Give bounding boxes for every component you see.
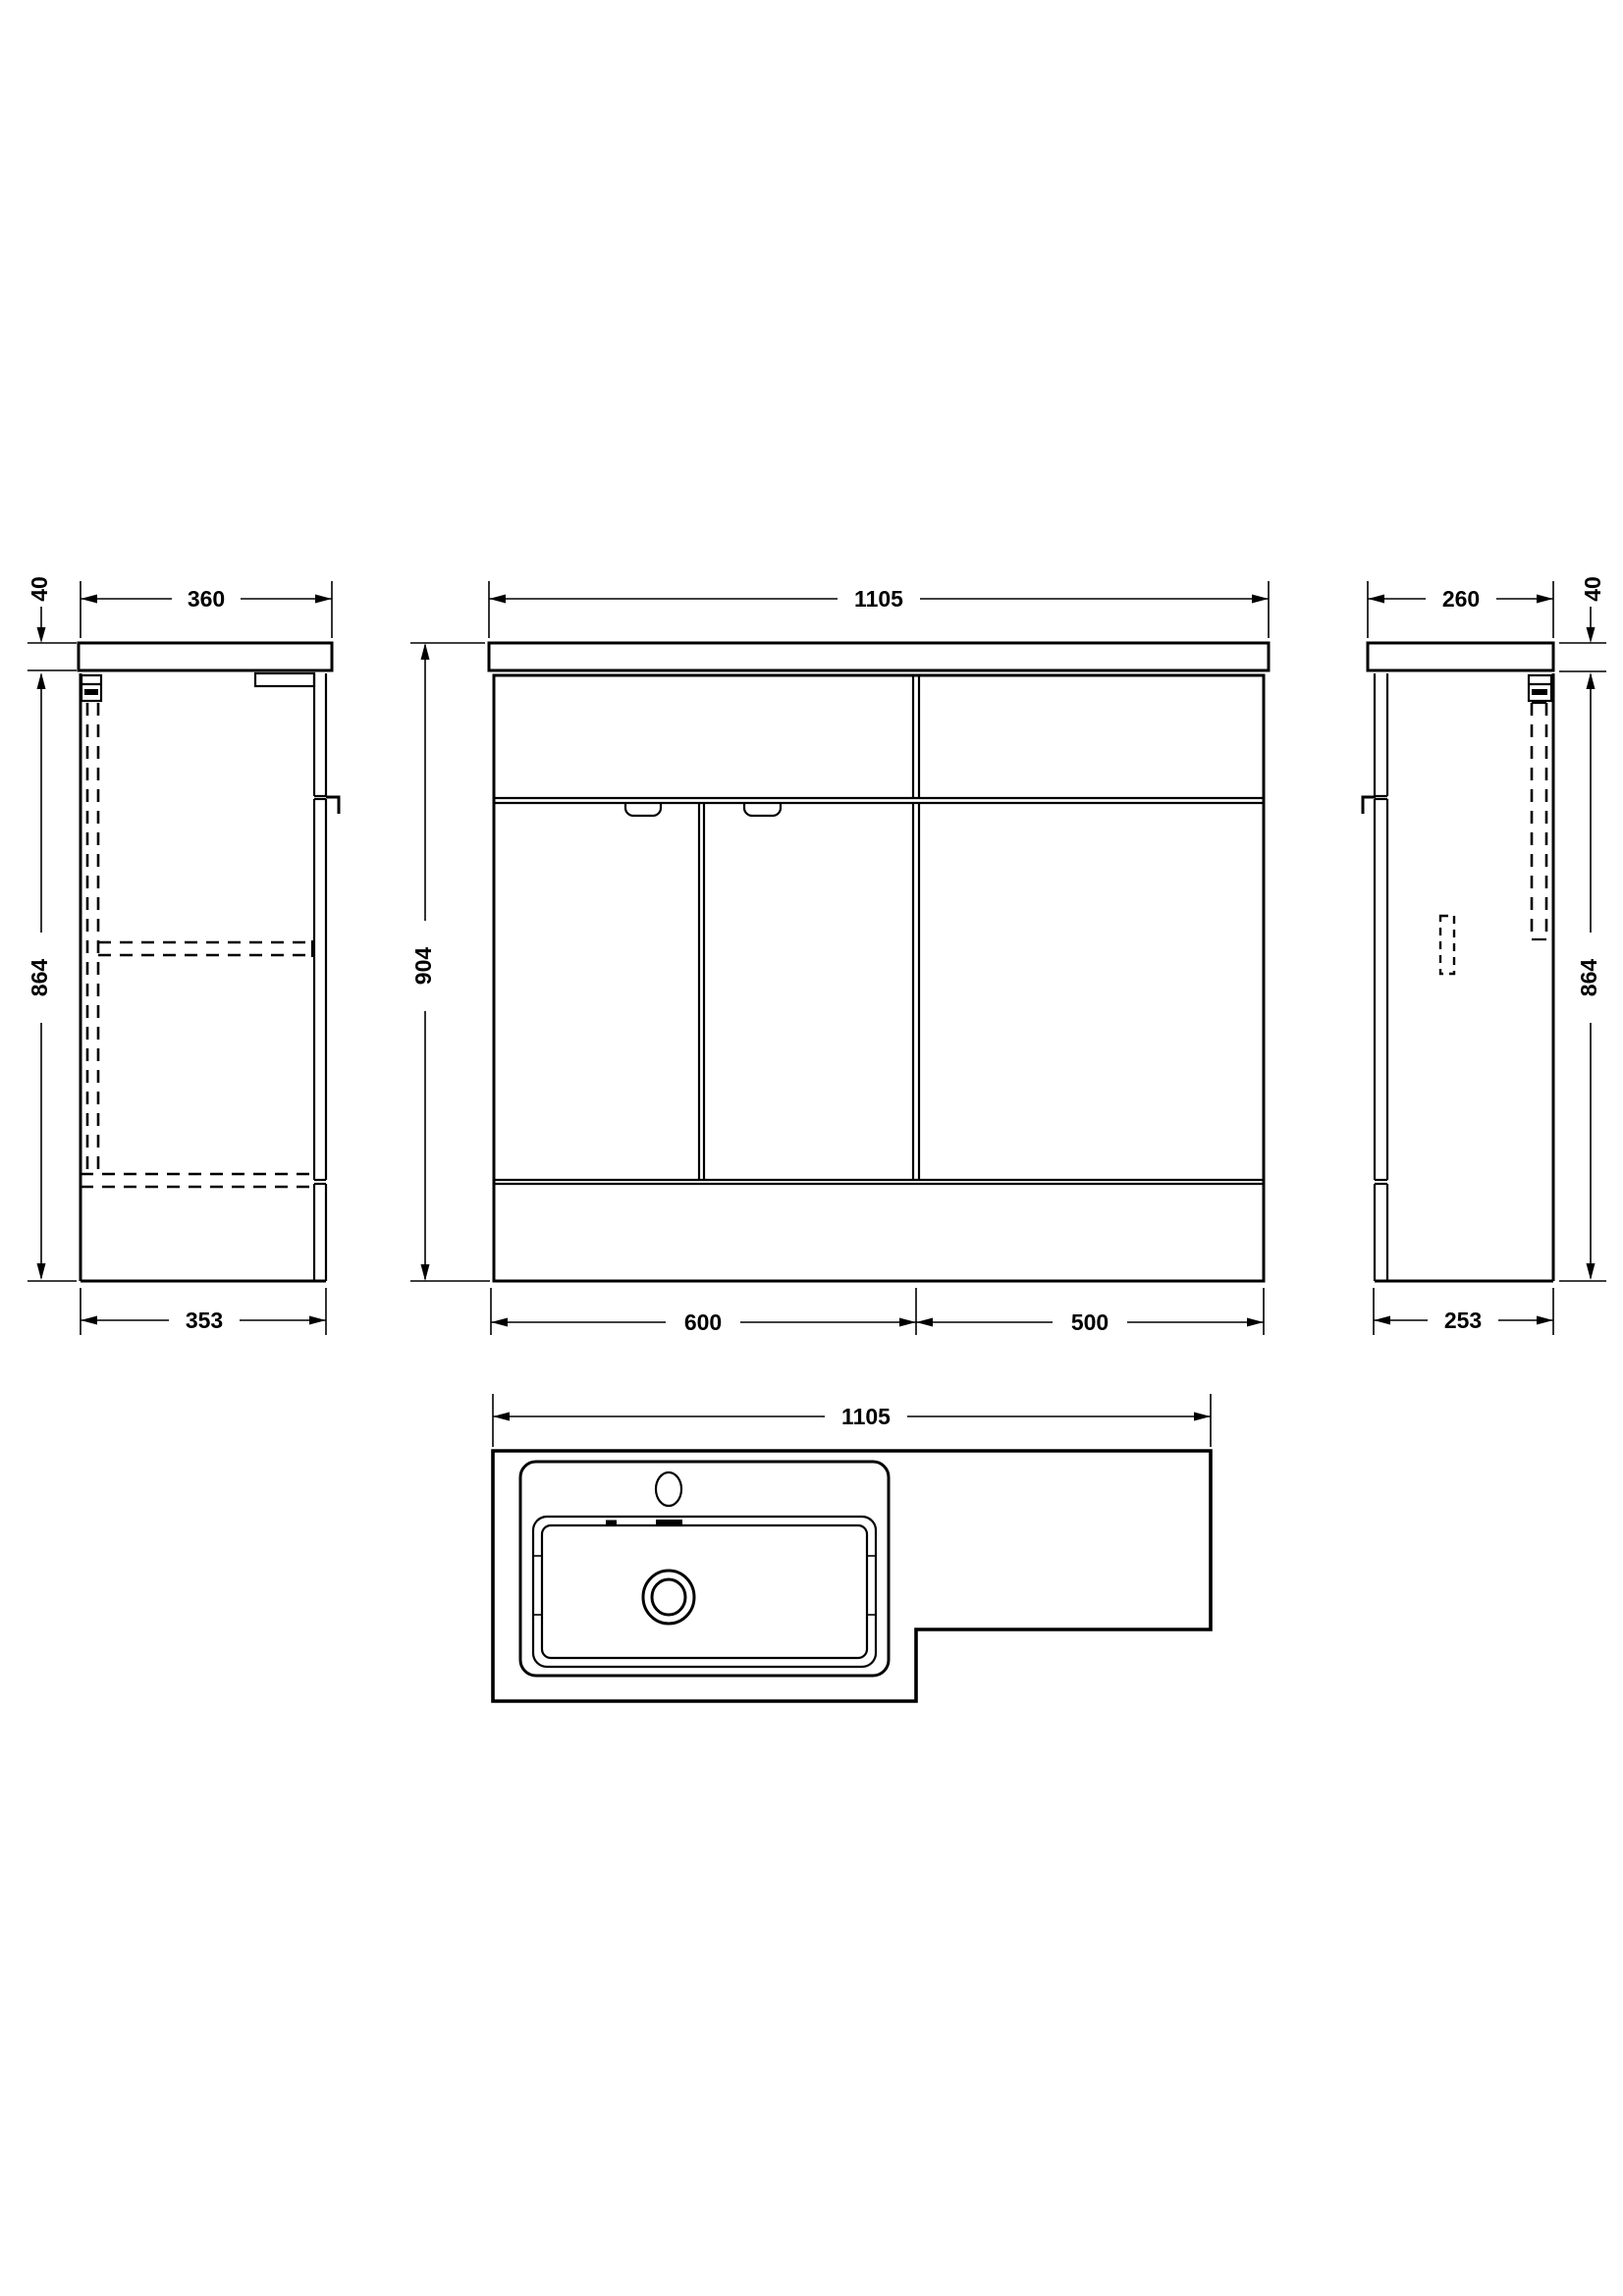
dim-front-height: 904 <box>410 947 436 986</box>
hidden-fixing-slot <box>1440 916 1454 974</box>
drain-inner-icon <box>652 1579 685 1615</box>
basin-rim-inner <box>542 1525 867 1658</box>
front-elevation <box>489 643 1269 1281</box>
dim-plan-overall-width: 1105 <box>841 1404 891 1429</box>
dim-left-bottom-width: 353 <box>186 1308 223 1333</box>
front-carcass <box>494 675 1264 1281</box>
basin-rim-outer <box>533 1517 876 1667</box>
door-handle-left-icon <box>625 804 661 816</box>
dim-left-height: 864 <box>27 959 52 997</box>
dim-left-top-width: 360 <box>188 586 225 612</box>
plan-countertop-outline <box>493 1451 1211 1701</box>
right-view-countertop <box>1368 643 1553 670</box>
tap-hole-icon <box>656 1472 681 1506</box>
technical-drawing: 360 40 864 353 <box>0 0 1623 2296</box>
plan-view <box>493 1451 1211 1701</box>
door-handle-right-icon <box>744 804 781 816</box>
basin-ceramic-outline <box>520 1462 889 1676</box>
left-view-countertop <box>79 643 332 670</box>
dim-left-counter-thickness: 40 <box>27 576 52 602</box>
front-countertop <box>489 643 1269 670</box>
dim-right-height: 864 <box>1576 959 1601 997</box>
dim-right-counter-thickness: 40 <box>1580 576 1605 602</box>
fixing-clip-icon <box>81 675 101 701</box>
right-view-dimensions: 260 40 864 253 <box>1368 576 1606 1335</box>
front-view-dimensions: 1105 904 600 500 <box>410 581 1269 1335</box>
dim-right-bottom-width: 253 <box>1444 1308 1482 1333</box>
drawing-sheet: 360 40 864 353 <box>0 0 1623 2296</box>
dim-front-left-section: 600 <box>684 1309 722 1335</box>
left-view-dimensions: 360 40 864 353 <box>27 576 332 1335</box>
right-side-elevation <box>1363 643 1553 1281</box>
dim-front-overall-width: 1105 <box>854 586 903 612</box>
counter-rail <box>255 673 314 686</box>
fixing-clip-icon <box>1529 675 1551 701</box>
left-side-elevation <box>79 643 339 1281</box>
plan-view-dimensions: 1105 <box>493 1394 1211 1447</box>
dim-right-top-width: 260 <box>1442 586 1480 612</box>
dim-front-right-section: 500 <box>1071 1309 1109 1335</box>
door-handle-profile-icon <box>326 797 339 814</box>
